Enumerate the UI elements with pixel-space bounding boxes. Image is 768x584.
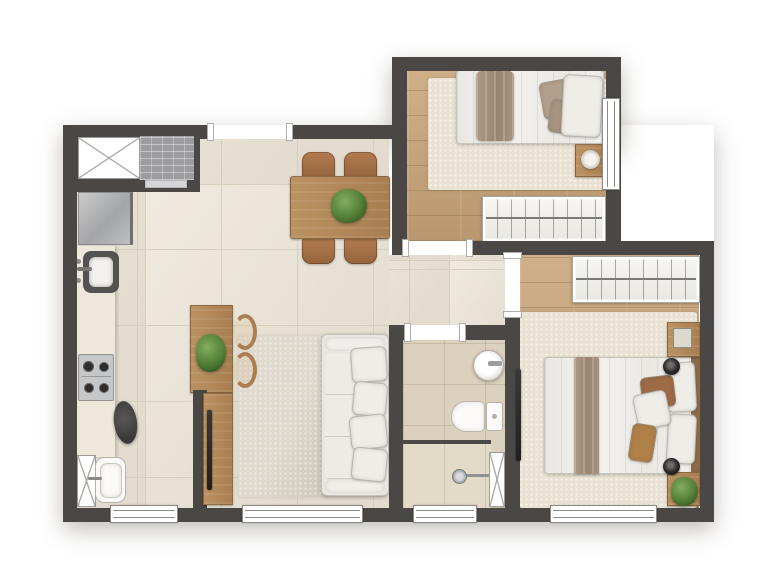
table-lamp: [581, 150, 600, 169]
bedroom-door-opening: [408, 241, 467, 255]
burner: [99, 362, 109, 372]
bathroom-door-jamb: [459, 323, 466, 342]
entry-opening: [213, 125, 287, 139]
double-bed-blanket: [574, 357, 599, 474]
sofa-pillow: [348, 413, 388, 451]
kitchen-sink: [83, 251, 119, 293]
laundry-faucet: [88, 477, 102, 480]
sofa-pillow: [350, 346, 388, 383]
bedroom-small-wardrobe: [482, 196, 606, 242]
refrigerator: [78, 192, 133, 245]
bathroom-shaft: [489, 452, 505, 507]
entry-jamb: [286, 123, 293, 141]
master-door-jamb: [503, 252, 522, 259]
utility-shaft-top: [78, 137, 140, 179]
entry-jamb: [207, 123, 214, 141]
shower-head: [452, 469, 467, 484]
kitchen-sink-basin: [89, 257, 113, 287]
bedroom-door-jamb: [466, 239, 473, 257]
dining-chair: [344, 238, 377, 264]
burner: [84, 383, 94, 393]
burner: [83, 361, 94, 372]
master-tv: [516, 369, 521, 461]
wall-bath-top-right: [460, 325, 505, 340]
wall-bedroom-left: [392, 57, 407, 255]
desk-chair: [233, 314, 257, 350]
burner: [99, 383, 109, 393]
kitchen-window: [110, 505, 178, 523]
bed-pillow-white: [560, 74, 603, 138]
wall-bedroom-top: [392, 57, 621, 71]
bathroom-window: [413, 505, 477, 523]
cooktop-divider: [82, 376, 111, 377]
shower-arm: [465, 474, 491, 477]
desk-chair: [233, 352, 257, 388]
floor-plan: [0, 0, 768, 584]
cooktop: [78, 354, 114, 401]
bedroom-small-window: [602, 98, 620, 190]
master-window: [550, 505, 657, 523]
sofa: [321, 334, 389, 496]
bedside-lamp: [663, 358, 680, 375]
bedside-lamp: [663, 458, 680, 475]
sofa-pillow: [350, 446, 388, 482]
master-door-jamb: [503, 311, 522, 318]
bathroom-door-opening: [410, 325, 460, 340]
dining-chair: [344, 152, 377, 178]
laundry-shaft: [77, 455, 96, 507]
laundry-tank-basin: [100, 463, 122, 498]
wall-top-right: [287, 125, 407, 139]
master-wardrobe: [572, 256, 700, 303]
single-bed-blanket: [476, 71, 514, 141]
nightstand-frame: [673, 328, 692, 348]
dining-chair: [302, 152, 335, 178]
wall-right: [700, 241, 714, 522]
living-window: [242, 505, 363, 523]
basin-faucet: [488, 361, 502, 366]
master-door-opening: [505, 258, 520, 313]
shower-partition: [403, 440, 491, 444]
laundry-tank: [95, 457, 126, 503]
bedroom-door-jamb: [402, 239, 409, 257]
kitchen-faucet: [77, 267, 92, 271]
grill-area: [140, 136, 194, 180]
wall-bath-left: [389, 325, 403, 508]
grill-sill: [145, 180, 187, 188]
dining-chair: [302, 238, 335, 264]
flush-button: [492, 414, 497, 419]
bathroom-door-jamb: [404, 323, 411, 342]
toilet-bowl: [451, 401, 485, 432]
sofa-pillow: [352, 381, 389, 418]
living-tv: [207, 410, 212, 490]
